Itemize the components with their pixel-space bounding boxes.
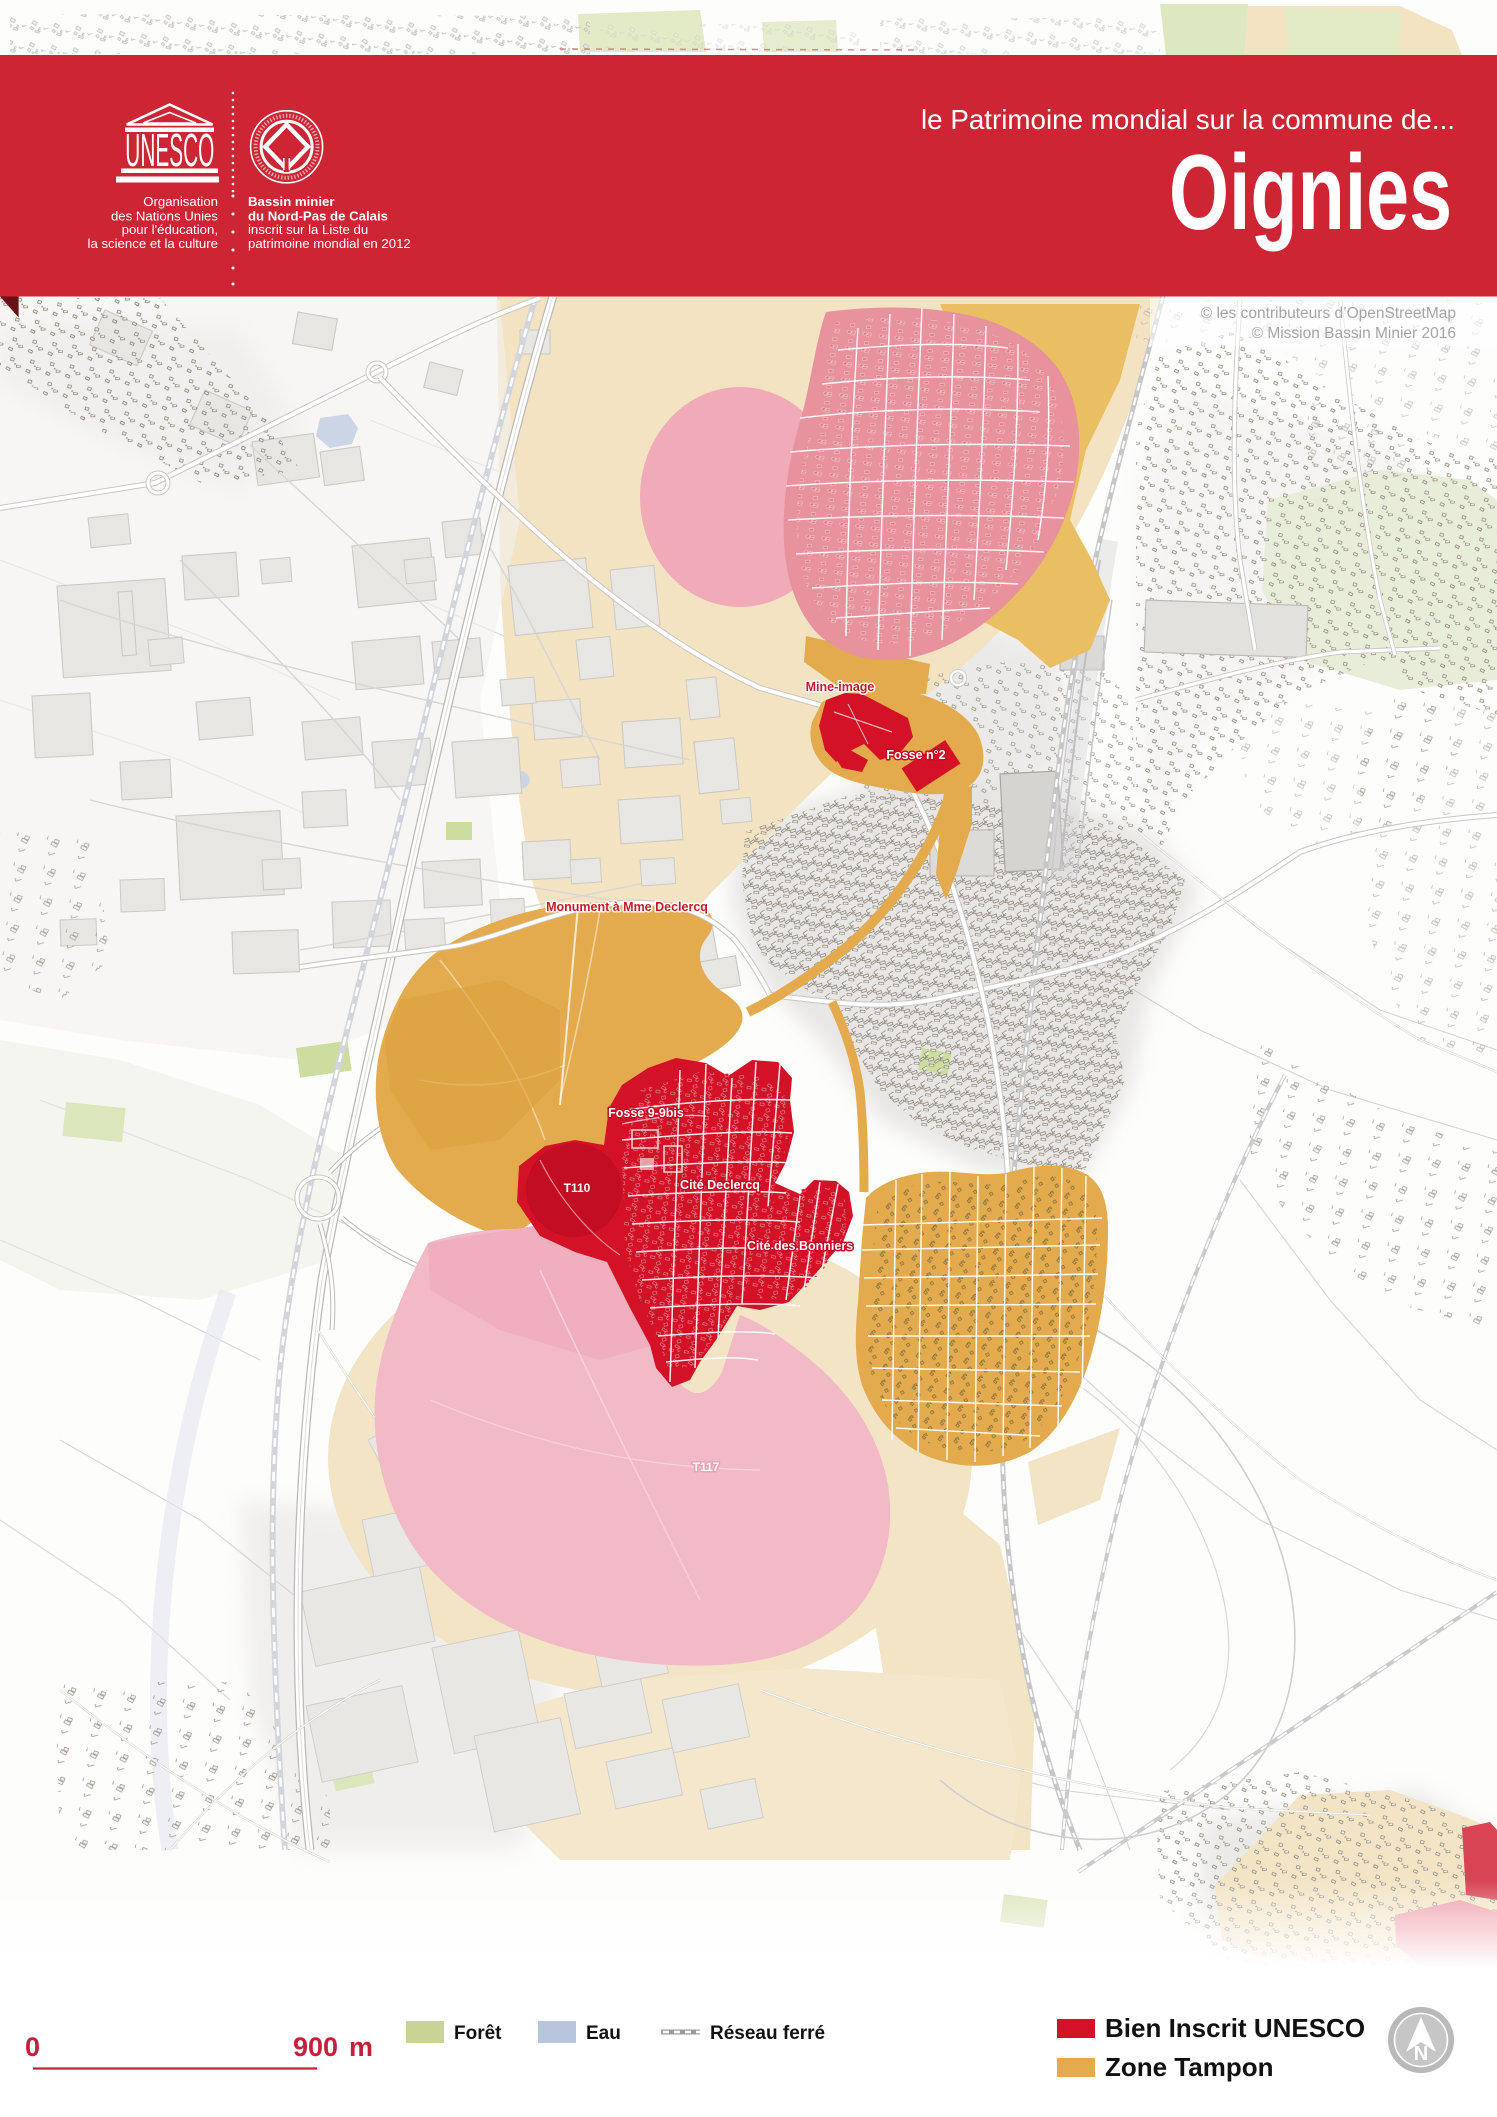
svg-text:900: 900 — [293, 2032, 338, 2062]
svg-text:UNESCO: UNESCO — [125, 124, 214, 176]
svg-text:Bassin minier: Bassin minier — [248, 194, 335, 209]
svg-text:Réseau ferré: Réseau ferré — [710, 2023, 825, 2044]
svg-text:Mine-image: Mine-image — [806, 680, 875, 694]
svg-text:inscrit sur la Liste du: inscrit sur la Liste du — [248, 222, 368, 237]
svg-text:m: m — [349, 2032, 373, 2062]
svg-text:le Patrimoine mondial sur la c: le Patrimoine mondial sur la commune de.… — [921, 104, 1455, 135]
svg-text:patrimoine mondial en 2012: patrimoine mondial en 2012 — [248, 236, 411, 251]
svg-text:0: 0 — [25, 2032, 40, 2062]
svg-text:Fosse n°2: Fosse n°2 — [886, 748, 945, 762]
svg-text:© les contributeurs d’OpenStre: © les contributeurs d’OpenStreetMap — [1201, 305, 1456, 322]
svg-text:la science et la culture: la science et la culture — [88, 236, 218, 251]
svg-text:© Mission Bassin Minier 2016: © Mission Bassin Minier 2016 — [1252, 325, 1456, 342]
svg-text:T117: T117 — [693, 1460, 720, 1474]
svg-text:Forêt: Forêt — [454, 2023, 502, 2044]
svg-text:Oignies: Oignies — [1169, 132, 1452, 252]
svg-text:Fosse 9-9bis: Fosse 9-9bis — [608, 1106, 684, 1120]
svg-text:Zone Tampon: Zone Tampon — [1105, 2052, 1274, 2082]
svg-text:Bien Inscrit UNESCO: Bien Inscrit UNESCO — [1105, 2013, 1365, 2043]
svg-text:Monument à Mme Declercq: Monument à Mme Declercq — [546, 900, 708, 914]
svg-text:N: N — [1414, 2043, 1428, 2065]
svg-text:pour l'éducation,: pour l'éducation, — [122, 222, 218, 237]
svg-text:Eau: Eau — [586, 2023, 621, 2044]
svg-text:Cité des Bonniers: Cité des Bonniers — [747, 1239, 853, 1253]
svg-text:Cité Declercq: Cité Declercq — [680, 1178, 760, 1192]
svg-text:Organisation: Organisation — [143, 194, 218, 209]
svg-text:T110: T110 — [564, 1181, 591, 1195]
